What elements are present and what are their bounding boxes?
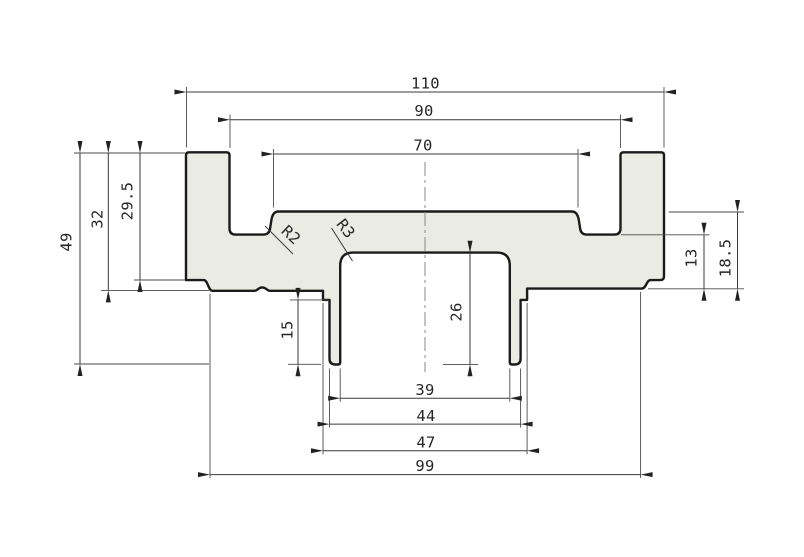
dim-99-label: 99	[415, 457, 434, 475]
dim-26-label: 26	[448, 302, 466, 321]
dim-13-label: 13	[683, 248, 701, 267]
dim-29-5-label: 29.5	[119, 182, 137, 221]
dim-110-label: 110	[411, 75, 440, 93]
dim-70-label: 70	[413, 137, 432, 155]
dim-49-label: 49	[58, 232, 76, 251]
dim-15-label: 15	[279, 320, 297, 339]
dim-44-label: 44	[416, 407, 435, 425]
profile-drawing: 110 90 70 49 32 29.5 13 18.5 39 44 47 99…	[0, 0, 804, 557]
dim-39-label: 39	[415, 381, 434, 399]
dim-47-label: 47	[416, 433, 435, 451]
dim-18-5-label: 18.5	[717, 239, 735, 278]
technical-drawing-canvas: 110 90 70 49 32 29.5 13 18.5 39 44 47 99…	[0, 0, 804, 557]
dim-90-label: 90	[414, 102, 433, 120]
dim-32-label: 32	[89, 209, 107, 228]
